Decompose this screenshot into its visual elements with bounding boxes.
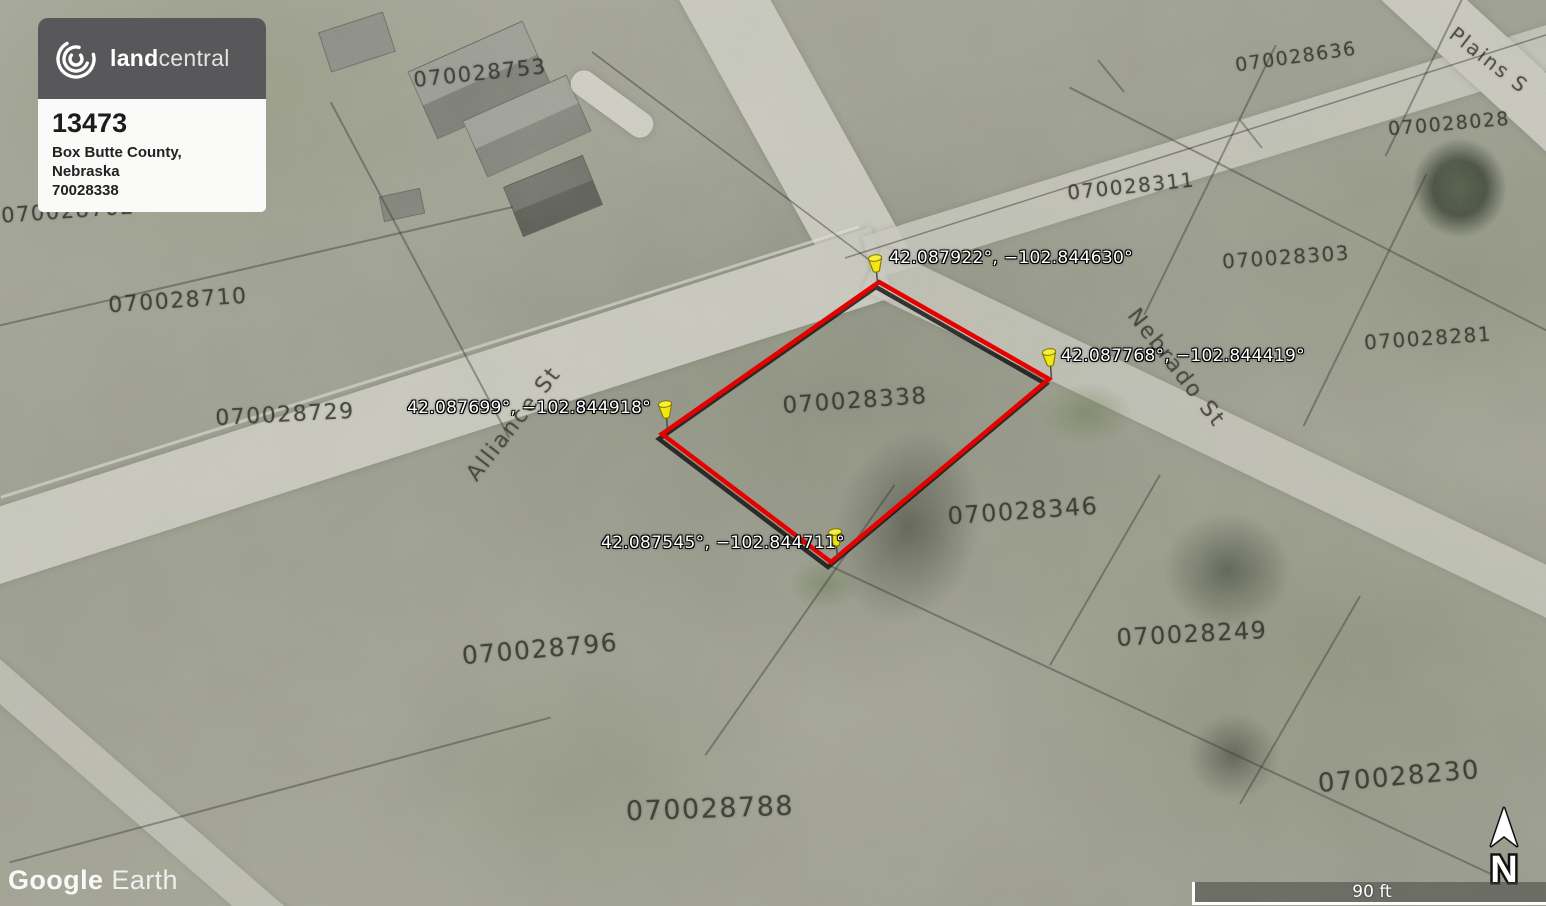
parcel-boundary-line <box>1049 474 1161 666</box>
parcel-number-label: 070028796 <box>461 628 620 671</box>
yellow-pushpin-icon[interactable] <box>650 395 681 432</box>
parcel-boundary-line <box>0 206 513 334</box>
north-arrow-icon <box>1491 808 1517 846</box>
scale-label: 90 ft <box>1352 882 1391 902</box>
landcentral-wordmark: landcentral <box>110 45 230 72</box>
pole-shadow <box>1098 60 1124 92</box>
parcel-number-label: 070028338 <box>782 383 929 419</box>
wordmark-central: central <box>158 45 229 71</box>
parcel-number-label: 070028710 <box>108 284 249 319</box>
road-alliance-west <box>0 227 893 593</box>
parcel-number-label: 070028230 <box>1317 755 1481 799</box>
yellow-pushpin-icon[interactable] <box>820 523 851 560</box>
landcentral-swirl-icon <box>54 37 98 81</box>
pin-coordinates-label: 42.087545°, −102.844711° <box>601 533 845 553</box>
yellow-pushpin-icon[interactable] <box>860 249 891 286</box>
parcel-number-label: 070028281 <box>1363 322 1492 355</box>
listing-location: Box Butte County, Nebraska <box>52 143 252 181</box>
watermark-google: Google <box>8 865 103 895</box>
watermark-earth: Earth <box>111 865 178 895</box>
landcentral-card: landcentral 13473 Box Butte County, Nebr… <box>38 18 266 212</box>
parcel-number-label: 070028788 <box>625 791 794 828</box>
listing-id: 13473 <box>52 108 252 138</box>
grass-patch <box>1038 383 1133 445</box>
map-scale-bar: 90 ft <box>1192 882 1546 905</box>
landcentral-logo-bar: landcentral <box>38 18 266 99</box>
parcel-boundary-line <box>705 484 896 755</box>
north-compass[interactable]: N <box>1478 806 1530 890</box>
yellow-pushpin-icon[interactable] <box>1034 343 1065 380</box>
tree <box>1412 138 1507 238</box>
parcel-number-label: 070028636 <box>1234 38 1358 77</box>
listing-parcel-number: 70028338 <box>52 181 252 200</box>
tree <box>1163 513 1291 628</box>
google-earth-watermark: GoogleEarth <box>8 865 178 896</box>
listing-info-panel: 13473 Box Butte County, Nebraska 7002833… <box>38 99 266 212</box>
outbuilding-roof <box>503 155 603 237</box>
shed-roof <box>318 12 396 73</box>
parcel-boundary-line <box>1303 174 1428 427</box>
parcel-number-label: 070028303 <box>1221 241 1350 274</box>
wordmark-land: land <box>110 45 158 71</box>
google-earth-map-canvas[interactable]: 0700287530700286360700280280700283110700… <box>0 0 1546 906</box>
curb-line <box>0 225 859 498</box>
